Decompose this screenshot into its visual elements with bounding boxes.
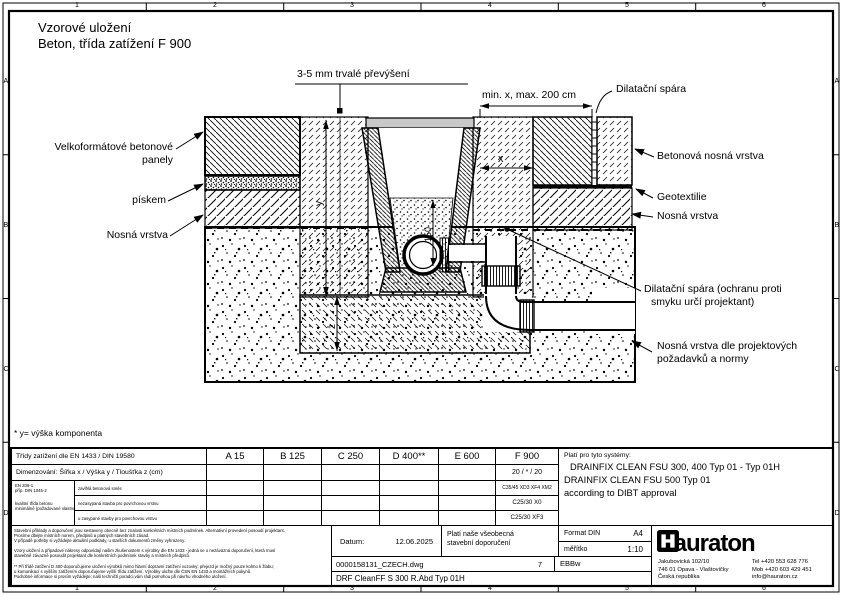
label-panels-line1: Velkoformátové betonové: [40, 141, 173, 154]
company-tel: Tel +420 553 628 776: [752, 559, 812, 567]
label-dilatation-lower: Dilatační spára (ochranu proti smyku urč…: [644, 283, 782, 309]
grade-empty: [321, 510, 380, 526]
dim-a15: [206, 464, 264, 481]
company-email: info@hauraton.cz: [752, 574, 812, 582]
ruler-row: D: [835, 510, 840, 517]
grade-empty: [379, 510, 439, 526]
class-c250: C 250: [321, 448, 380, 465]
company-block: hauraton Jakubovická 102/10 746 01 Opava…: [651, 525, 834, 587]
hauraton-logo-icon: [657, 530, 679, 552]
disclaimer-line: V případě potřeby si vyžádejte aktuální …: [14, 538, 329, 543]
class-b125: B 125: [263, 448, 322, 465]
format-label: Format DIN: [564, 530, 600, 537]
grade-empty: [206, 480, 264, 496]
date-label: Datum:: [340, 537, 364, 546]
grade-empty: [263, 480, 322, 496]
ruler-row: C: [4, 366, 9, 373]
file-cell: 0000158131_CZECH.dwg 7: [331, 556, 555, 572]
class-e600: E 600: [438, 448, 496, 465]
label-base-req-line2: požadavků a normy: [657, 353, 797, 366]
standard-line1: EN 206-1: [12, 481, 74, 488]
grade-f900-row2: C25/30 X0: [495, 495, 559, 511]
ruler-row: C: [835, 366, 840, 373]
company-address-line2: 746 01 Opava - Vlaštovičky: [658, 567, 729, 575]
systems-panel: Platí pro tyto systémy: DRAINFIX CLEAN F…: [558, 448, 834, 526]
systems-line1: DRAINFIX CLEAN FSU 300, 400 Typ 01 - Typ…: [559, 461, 833, 474]
disclaimer-line: Podrobné informace si prosím vyžádejte; …: [14, 574, 329, 579]
sheet-number: 7: [538, 560, 542, 569]
company-address-line3: Česká republika: [658, 574, 729, 582]
grade-empty: [321, 480, 380, 496]
grade-empty: [263, 510, 322, 526]
scale-value: 1:10: [627, 545, 643, 554]
class-d400: D 400**: [379, 448, 439, 465]
label-sand: pískem: [40, 194, 166, 207]
grade-empty: [438, 510, 496, 526]
company-contact: Tel +420 553 628 776 Mob +420 603 429 45…: [752, 559, 812, 582]
note-line2: stavební doporučení: [447, 539, 558, 548]
dim-z-label: z: [327, 324, 338, 329]
concrete-row-label-text: u zasypané stavby pro povrchovou vrstvu: [75, 511, 206, 521]
ruler-col: 3: [350, 2, 354, 9]
concrete-row-label: nezasypaná stavba pro povrchovou vrstvu: [74, 495, 207, 511]
grade-f900-row1: C35/45 XD3 XF4 XM2: [495, 480, 559, 496]
file-name: 0000158131_CZECH.dwg: [336, 560, 424, 569]
scale-label: měřítko: [564, 546, 587, 553]
label-dilatation-top: Dilatační spára: [616, 83, 686, 96]
grade-empty: [438, 495, 496, 511]
format-value: A4: [633, 529, 643, 538]
label-dilatation-lower-line2: smyku určí projektant): [651, 296, 782, 309]
label-dilatation-lower-line1: Dilatační spára (ochranu proti: [644, 283, 782, 296]
code-cell: EBBw: [554, 556, 652, 572]
standard-line4: minimálně (požadované vlastnosti): [12, 506, 74, 511]
systems-line3: according to DIBT approval: [559, 487, 833, 500]
grade-empty: [206, 510, 264, 526]
label-min-max: min. x, max. 200 cm: [482, 89, 576, 102]
format-cell: Format DIN A4: [558, 525, 652, 542]
dim-d400: [379, 464, 439, 481]
grade-empty: [379, 495, 439, 511]
ruler-col: 4: [488, 2, 492, 9]
concrete-row-label: u zasypané stavby pro povrchovou vrstvu: [74, 510, 207, 526]
ruler-col: 2: [213, 2, 217, 9]
dim-x-label: x: [498, 153, 504, 165]
label-panels: Velkoformátové betonové panely: [40, 141, 173, 167]
load-class-row-label: Třídy zatížení dle EN 1433 / DIN 19580: [11, 448, 207, 465]
cross-section: [205, 117, 635, 382]
label-concrete-base: Betonová nosná vrstva: [657, 150, 764, 163]
class-f900: F 900: [495, 448, 559, 465]
label-overhang: 3-5 mm trvalé převýšení: [297, 68, 410, 81]
dim-b125: [263, 464, 322, 481]
scale-cell: měřítko 1:10: [558, 541, 652, 557]
date-cell: Datum: 12.06.2025: [331, 525, 442, 557]
standard-line3: kvalitní třída betonu: [12, 493, 74, 506]
title-line-1: Vzorové uložení: [38, 20, 191, 36]
drawing-title-cell: DRF CleanFF S 300 R.Abd Typ 01H: [331, 571, 652, 587]
concrete-row-label-text: nezasypaná stavba pro povrchovou vrstvu: [75, 496, 206, 506]
dim-e600: [438, 464, 496, 481]
dim-y-label: y: [314, 201, 325, 206]
label-geotextile: Geotextilie: [657, 191, 707, 204]
grade-empty: [263, 495, 322, 511]
systems-line2: DRAINFIX CLEAN FSU 500 Typ 01: [559, 474, 833, 487]
company-address-line1: Jakubovická 102/10: [658, 559, 729, 567]
page-title: Vzorové uložení Beton, třída zatížení F …: [38, 20, 191, 52]
label-base-req-line1: Nosná vrstva dle projektových: [657, 340, 797, 353]
company-logo: hauraton: [657, 530, 755, 558]
ruler-row: B: [4, 222, 9, 229]
label-panels-line2: panely: [40, 154, 173, 167]
systems-heading: Platí pro tyto systémy:: [559, 449, 833, 461]
grade-f900-row3: C25/30 XF3: [495, 510, 559, 526]
dimension-row-label: Dimenzování: Šířka x / Výška y / Tloušťk…: [11, 464, 207, 481]
concrete-row-label: zavlhlá betonová směs: [74, 480, 207, 496]
label-base-layer-right: Nosná vrstva: [657, 210, 718, 223]
ruler-row: A: [4, 78, 9, 85]
title-line-2: Beton, třída zatížení F 900: [38, 36, 191, 52]
ruler-row: D: [4, 510, 9, 517]
dim-f900: 20 / * / 20: [495, 464, 559, 481]
label-base-layer-left: Nosná vrstva: [40, 229, 168, 242]
note-cell: Platí naše všeobecná stavební doporučení: [441, 525, 559, 557]
concrete-row-label-text: zavlhlá betonová směs: [75, 481, 206, 491]
standard-cell: EN 206-1 příp. DIN 1045-2 kvalitní třída…: [11, 480, 75, 526]
dim-c250: [321, 464, 380, 481]
disclaimer-line: stavebně závazně posoudit projektant dle…: [14, 553, 329, 558]
note-line1: Platí naše všeobecná: [447, 530, 558, 539]
label-base-req: Nosná vrstva dle projektových požadavků …: [657, 340, 797, 366]
dim-150-label: 150: [423, 227, 433, 242]
ruler-row: A: [835, 78, 840, 85]
disclaimer-block: Stavební příklady a doporučení jsou sest…: [11, 525, 332, 587]
ruler-col: 1: [75, 2, 79, 9]
grade-empty: [321, 495, 380, 511]
grade-empty: [379, 480, 439, 496]
ruler-col: 5: [625, 2, 629, 9]
grade-empty: [438, 480, 496, 496]
load-class-table: Třídy zatížení dle EN 1433 / DIN 19580 A…: [10, 447, 833, 586]
ruler-col: 6: [762, 2, 766, 9]
class-a15: A 15: [206, 448, 264, 465]
footnote: * y= výška komponenta: [14, 428, 102, 438]
date-value: 12.06.2025: [395, 537, 433, 546]
company-address: Jakubovická 102/10 746 01 Opava - Vlašto…: [658, 559, 729, 582]
grade-empty: [206, 495, 264, 511]
drawing-sheet: 1 2 3 4 5 6 1 2 3 4 5 6 A B C D A B C D …: [0, 0, 842, 595]
ruler-row: B: [835, 222, 840, 229]
company-mob: Mob +420 603 429 451: [752, 567, 812, 575]
